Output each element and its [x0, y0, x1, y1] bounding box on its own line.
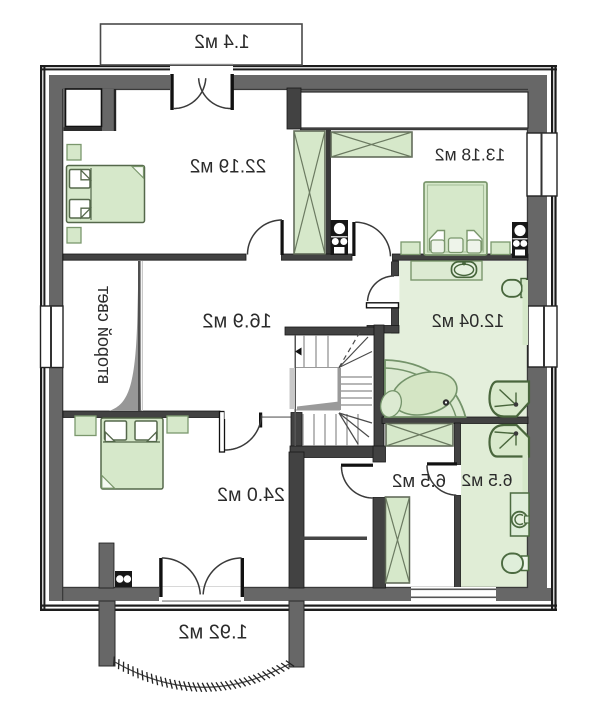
svg-text:16.9 м2: 16.9 м2: [202, 311, 271, 333]
svg-text:1.92 м2: 1.92 м2: [178, 622, 247, 644]
svg-text:1.4 м2: 1.4 м2: [194, 32, 249, 53]
svg-text:6.5 м2: 6.5 м2: [462, 470, 513, 490]
svg-text:24.0 м2: 24.0 м2: [217, 484, 285, 506]
svg-text:12.04 м2: 12.04 м2: [432, 311, 504, 331]
svg-text:6.5 м2: 6.5 м2: [392, 470, 446, 491]
svg-text:22.19 м2: 22.19 м2: [190, 157, 266, 178]
svg-text:второй свет: второй свет: [94, 286, 114, 384]
svg-text:13.18 м2: 13.18 м2: [435, 145, 505, 165]
